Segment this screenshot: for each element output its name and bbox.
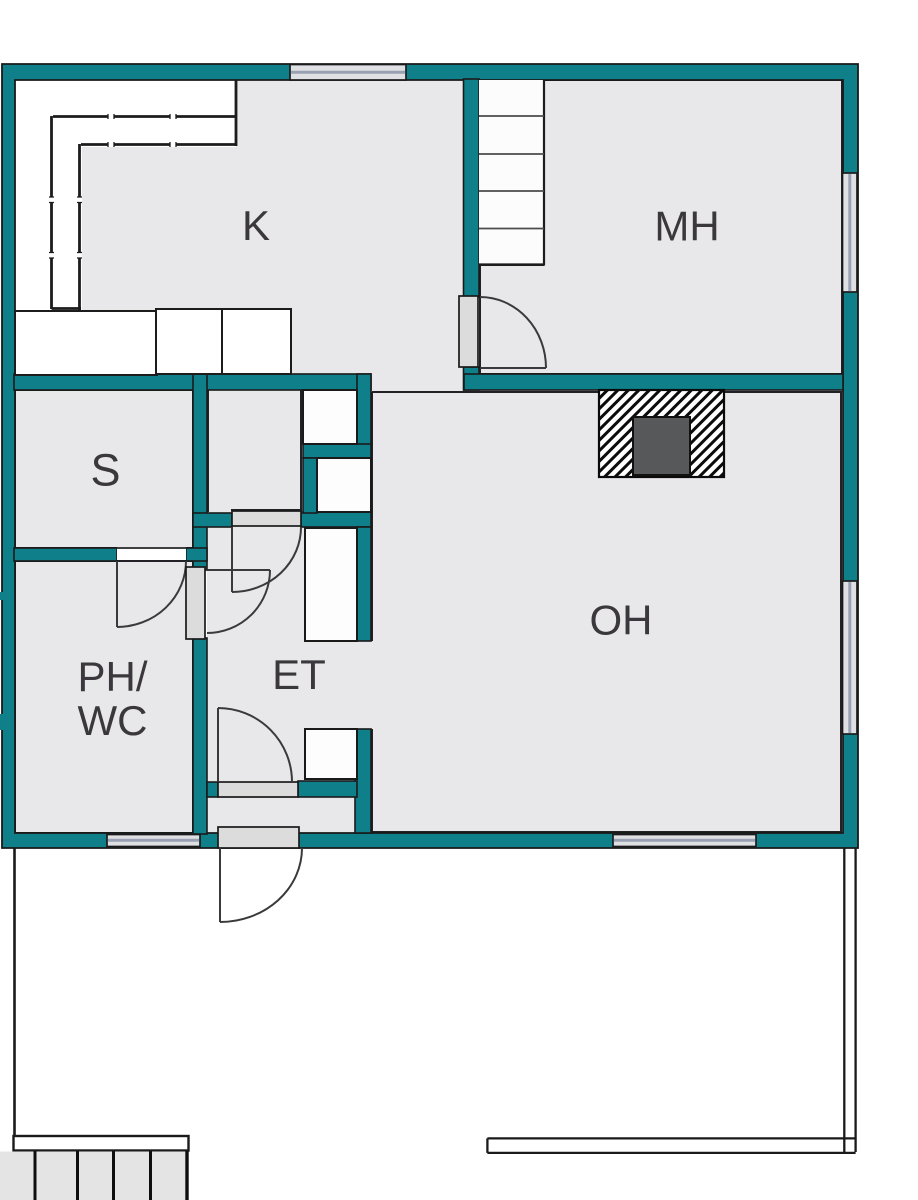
svg-text:OH: OH <box>590 597 653 644</box>
svg-text:MH: MH <box>654 203 719 250</box>
svg-text:S: S <box>90 445 120 496</box>
svg-text:K: K <box>242 202 270 249</box>
svg-text:PH/WC: PH/WC <box>77 653 147 744</box>
svg-text:ET: ET <box>272 651 326 698</box>
